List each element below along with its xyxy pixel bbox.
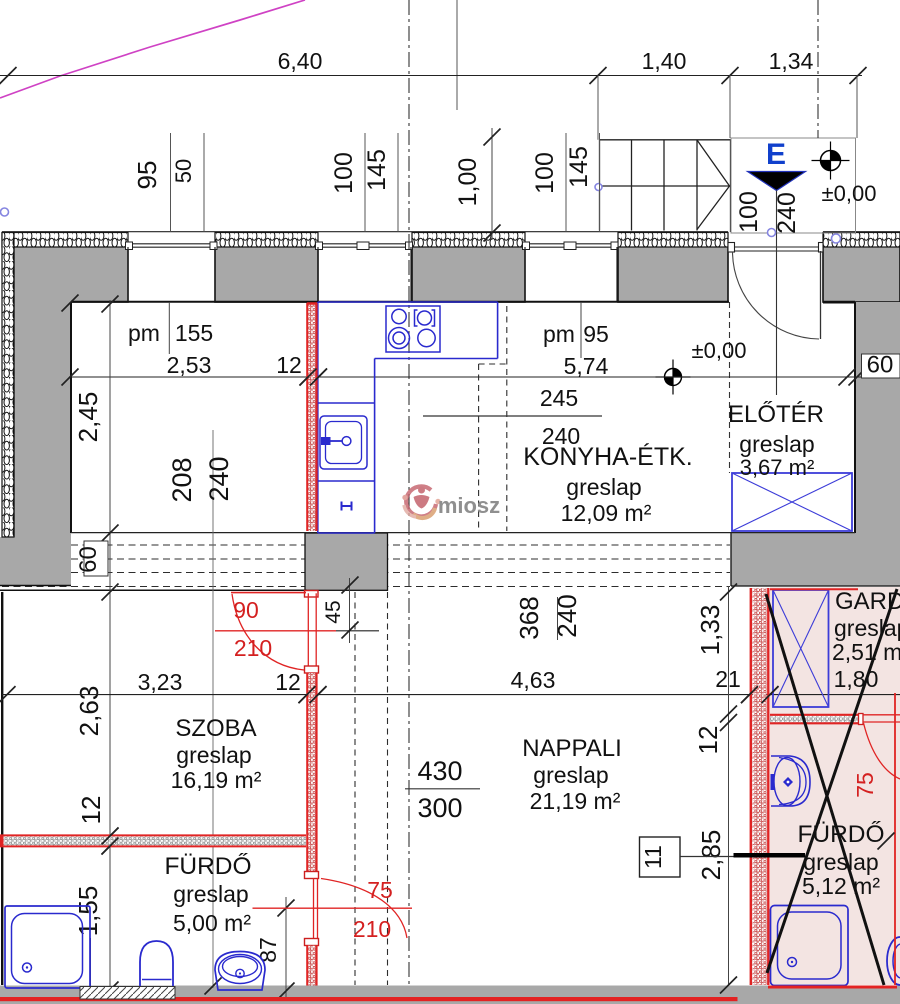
svg-text:12,09 m²: 12,09 m² (561, 500, 652, 526)
svg-text:240: 240 (773, 192, 801, 234)
svg-text:greslap: greslap (173, 881, 248, 907)
svg-text:1,40: 1,40 (642, 48, 687, 74)
svg-text:greslap: greslap (834, 615, 900, 641)
svg-text:12: 12 (276, 352, 302, 378)
svg-text:3,67 m²: 3,67 m² (740, 455, 815, 480)
svg-text:16,19 m²: 16,19 m² (171, 767, 262, 793)
svg-text:210: 210 (234, 635, 272, 661)
svg-text:210: 210 (353, 916, 391, 942)
svg-text:100: 100 (330, 152, 358, 194)
svg-text:1,33: 1,33 (695, 605, 725, 656)
svg-text:145: 145 (363, 149, 391, 191)
svg-text:ELŐTÉR: ELŐTÉR (728, 401, 824, 428)
svg-text:pm: pm (543, 321, 575, 347)
svg-text:1,00: 1,00 (454, 158, 482, 207)
svg-text:100: 100 (531, 152, 559, 194)
svg-text:100: 100 (735, 191, 763, 233)
svg-text:11: 11 (640, 845, 666, 869)
svg-text:87: 87 (255, 937, 281, 963)
svg-text:75: 75 (367, 877, 393, 903)
svg-text:430: 430 (417, 756, 462, 786)
svg-text:greslap: greslap (176, 742, 251, 768)
svg-text:2,63: 2,63 (74, 686, 104, 737)
svg-text:5,00 m²: 5,00 m² (173, 910, 251, 936)
svg-text:12: 12 (693, 726, 723, 755)
svg-text:90: 90 (233, 597, 259, 623)
svg-text:208: 208 (167, 457, 197, 502)
svg-text:2,51 m²: 2,51 m² (832, 639, 900, 665)
svg-text:2,45: 2,45 (73, 392, 103, 443)
svg-text:300: 300 (417, 793, 462, 823)
svg-text:95: 95 (132, 161, 162, 190)
svg-text:145: 145 (565, 146, 593, 188)
svg-text:21,19 m²: 21,19 m² (530, 788, 621, 814)
svg-text:60: 60 (867, 352, 894, 379)
svg-text:95: 95 (583, 321, 609, 347)
svg-text:KONYHA-ÉTK.: KONYHA-ÉTK. (523, 442, 692, 471)
svg-text:greslap: greslap (533, 762, 608, 788)
svg-text:GARDRÓB: GARDRÓB (835, 588, 900, 615)
svg-text:50: 50 (171, 159, 196, 183)
svg-text:240: 240 (552, 594, 582, 637)
svg-text:FÜRDŐ: FÜRDŐ (797, 821, 884, 848)
svg-text:FÜRDŐ: FÜRDŐ (164, 853, 251, 880)
svg-text:NAPPALI: NAPPALI (522, 735, 622, 762)
svg-text:12: 12 (76, 796, 106, 825)
svg-text:1,55: 1,55 (73, 886, 103, 937)
svg-text:SZOBA: SZOBA (175, 715, 256, 742)
svg-text:6,40: 6,40 (278, 48, 323, 74)
svg-text:greslap: greslap (739, 431, 814, 457)
svg-text:240: 240 (204, 456, 234, 501)
svg-text:245: 245 (540, 385, 578, 411)
svg-text:E: E (766, 138, 786, 171)
svg-text:miosz: miosz (438, 493, 500, 518)
svg-text:1,34: 1,34 (769, 48, 814, 74)
svg-text:1,80: 1,80 (834, 666, 879, 692)
svg-text:12: 12 (275, 669, 301, 695)
svg-text:155: 155 (175, 320, 213, 346)
svg-text:5,74: 5,74 (564, 353, 609, 379)
svg-text:greslap: greslap (566, 474, 641, 500)
svg-text:±0,00: ±0,00 (822, 181, 877, 206)
svg-text:60: 60 (75, 546, 102, 573)
svg-text:75: 75 (852, 772, 878, 798)
svg-text:4,63: 4,63 (511, 667, 556, 693)
svg-text:2,53: 2,53 (167, 352, 212, 378)
svg-text:3,23: 3,23 (138, 669, 183, 695)
svg-text:pm: pm (128, 320, 160, 346)
svg-text:±0,00: ±0,00 (692, 338, 747, 363)
svg-text:2,85: 2,85 (696, 830, 726, 881)
svg-text:5,12 m²: 5,12 m² (802, 873, 880, 899)
svg-text:greslap: greslap (803, 849, 878, 875)
svg-text:45: 45 (322, 600, 345, 623)
svg-text:368: 368 (514, 596, 544, 639)
